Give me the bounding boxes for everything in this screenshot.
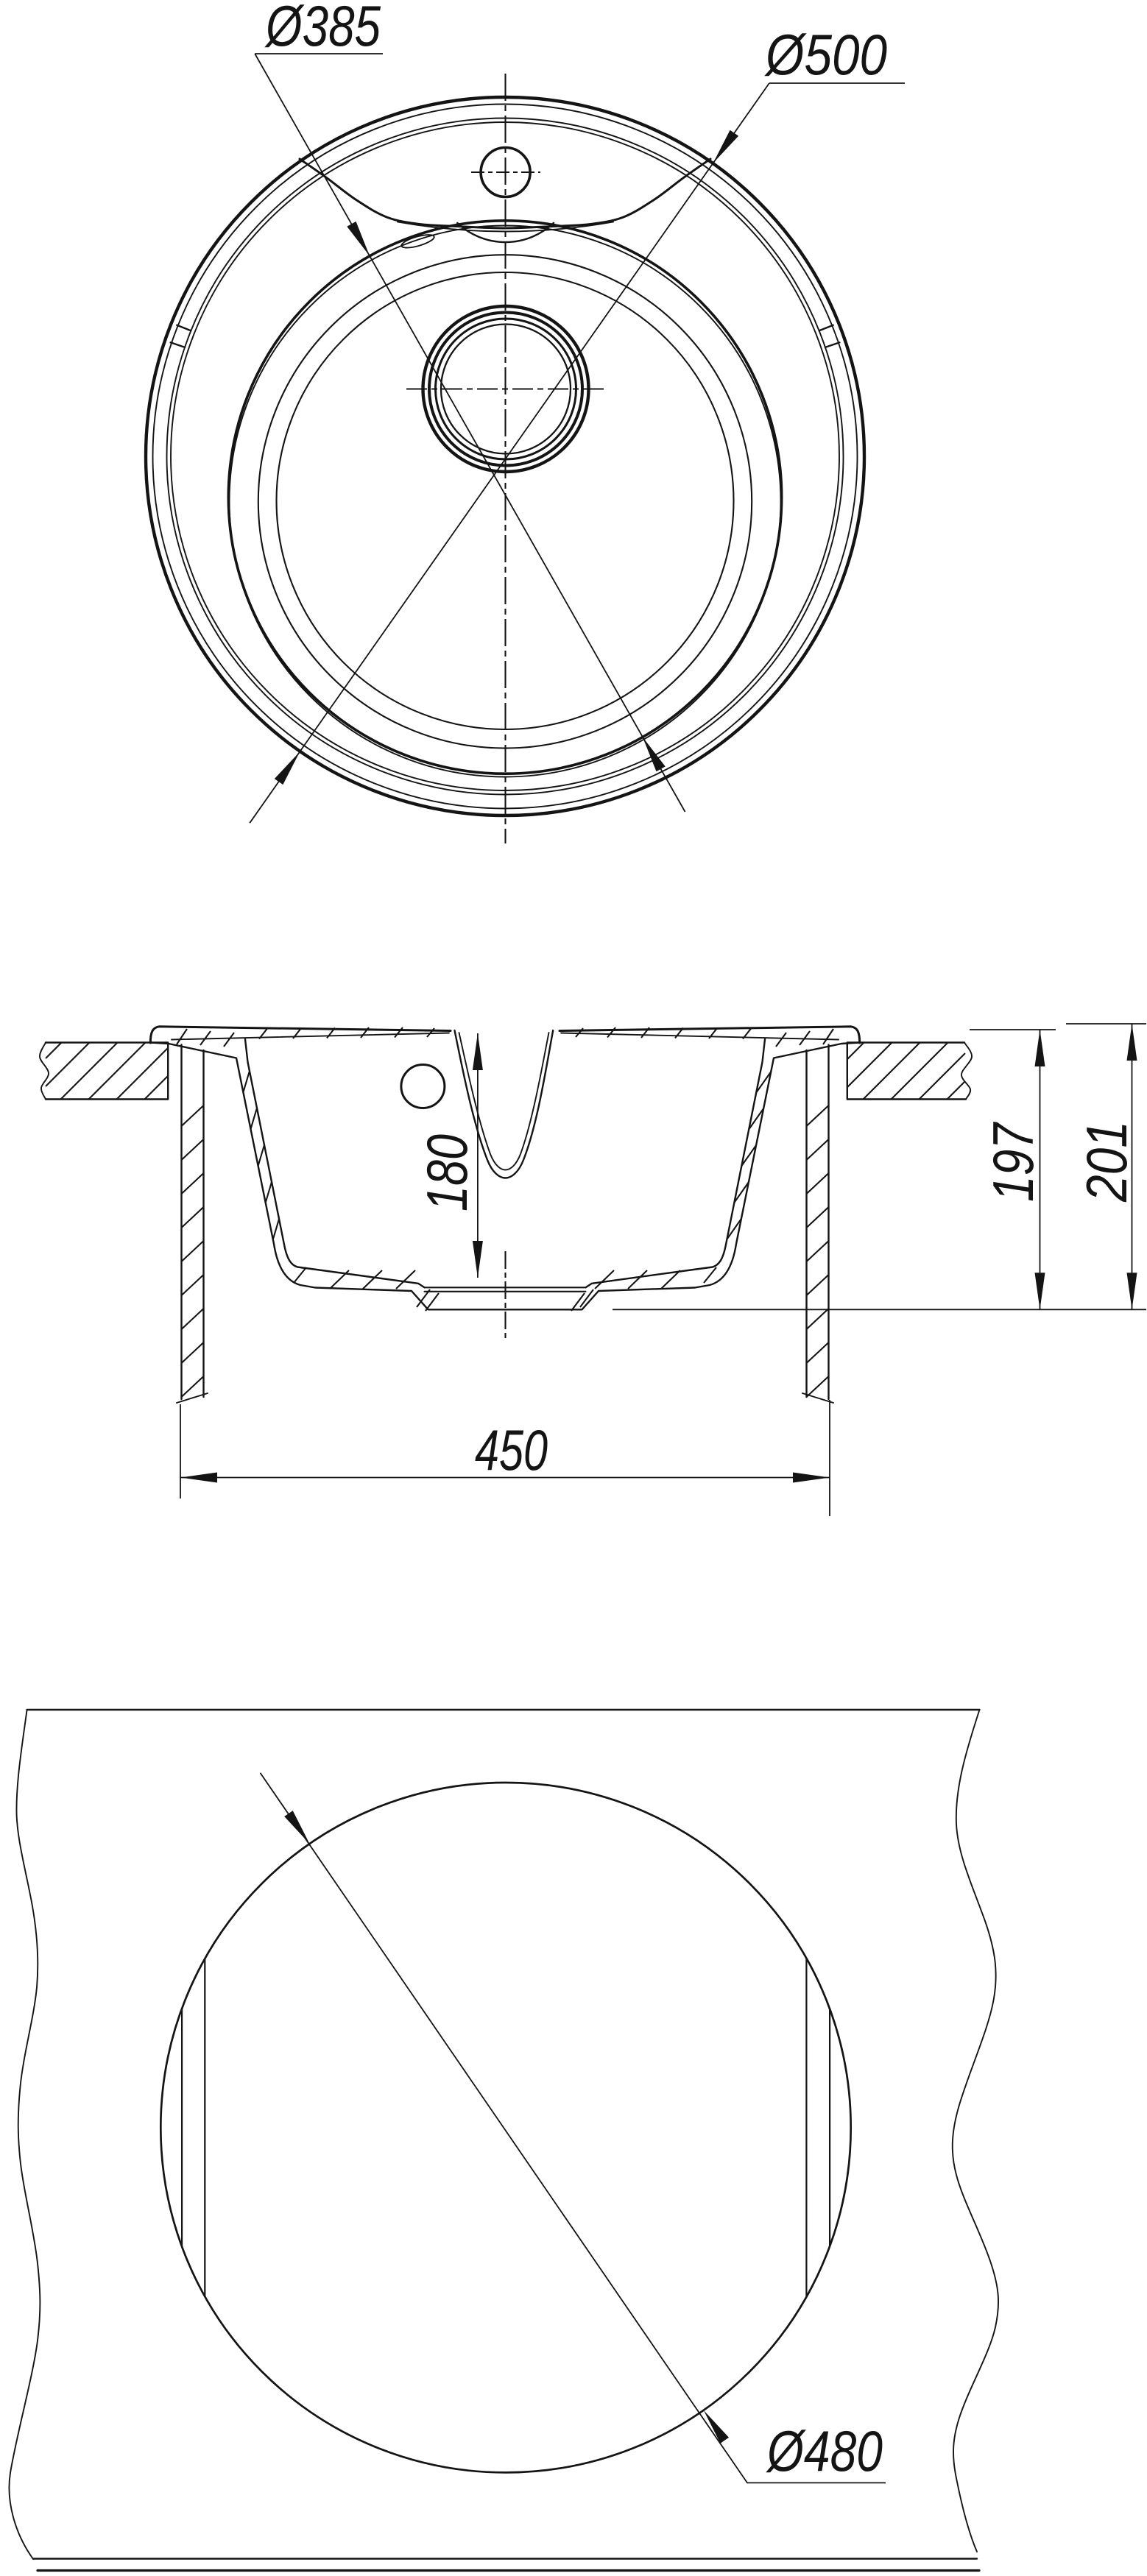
svg-text:201: 201 bbox=[1074, 1121, 1139, 1203]
svg-text:Ø385: Ø385 bbox=[264, 0, 381, 58]
svg-text:197: 197 bbox=[981, 1122, 1045, 1202]
svg-text:180: 180 bbox=[414, 1134, 479, 1211]
svg-text:450: 450 bbox=[475, 1418, 548, 1482]
svg-text:Ø500: Ø500 bbox=[763, 22, 887, 87]
svg-text:Ø480: Ø480 bbox=[766, 2418, 883, 2483]
